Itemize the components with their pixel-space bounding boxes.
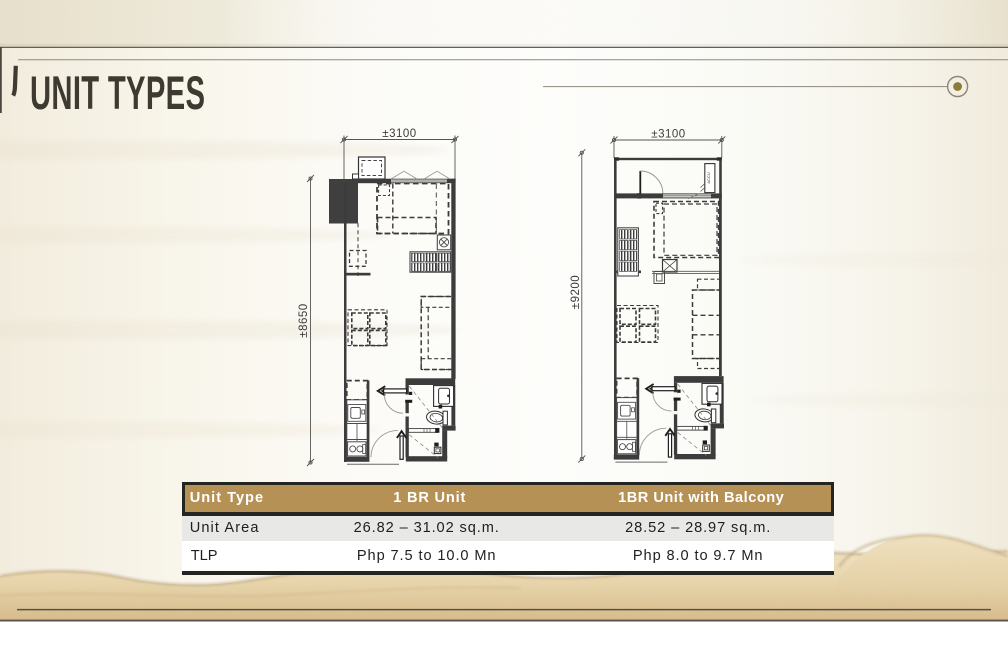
svg-text:±3100: ±3100: [382, 128, 416, 140]
svg-text:ACCU: ACCU: [706, 172, 711, 183]
svg-text:±9200: ±9200: [570, 275, 582, 309]
svg-text:±8650: ±8650: [298, 303, 310, 337]
svg-text:±3100: ±3100: [651, 129, 685, 141]
